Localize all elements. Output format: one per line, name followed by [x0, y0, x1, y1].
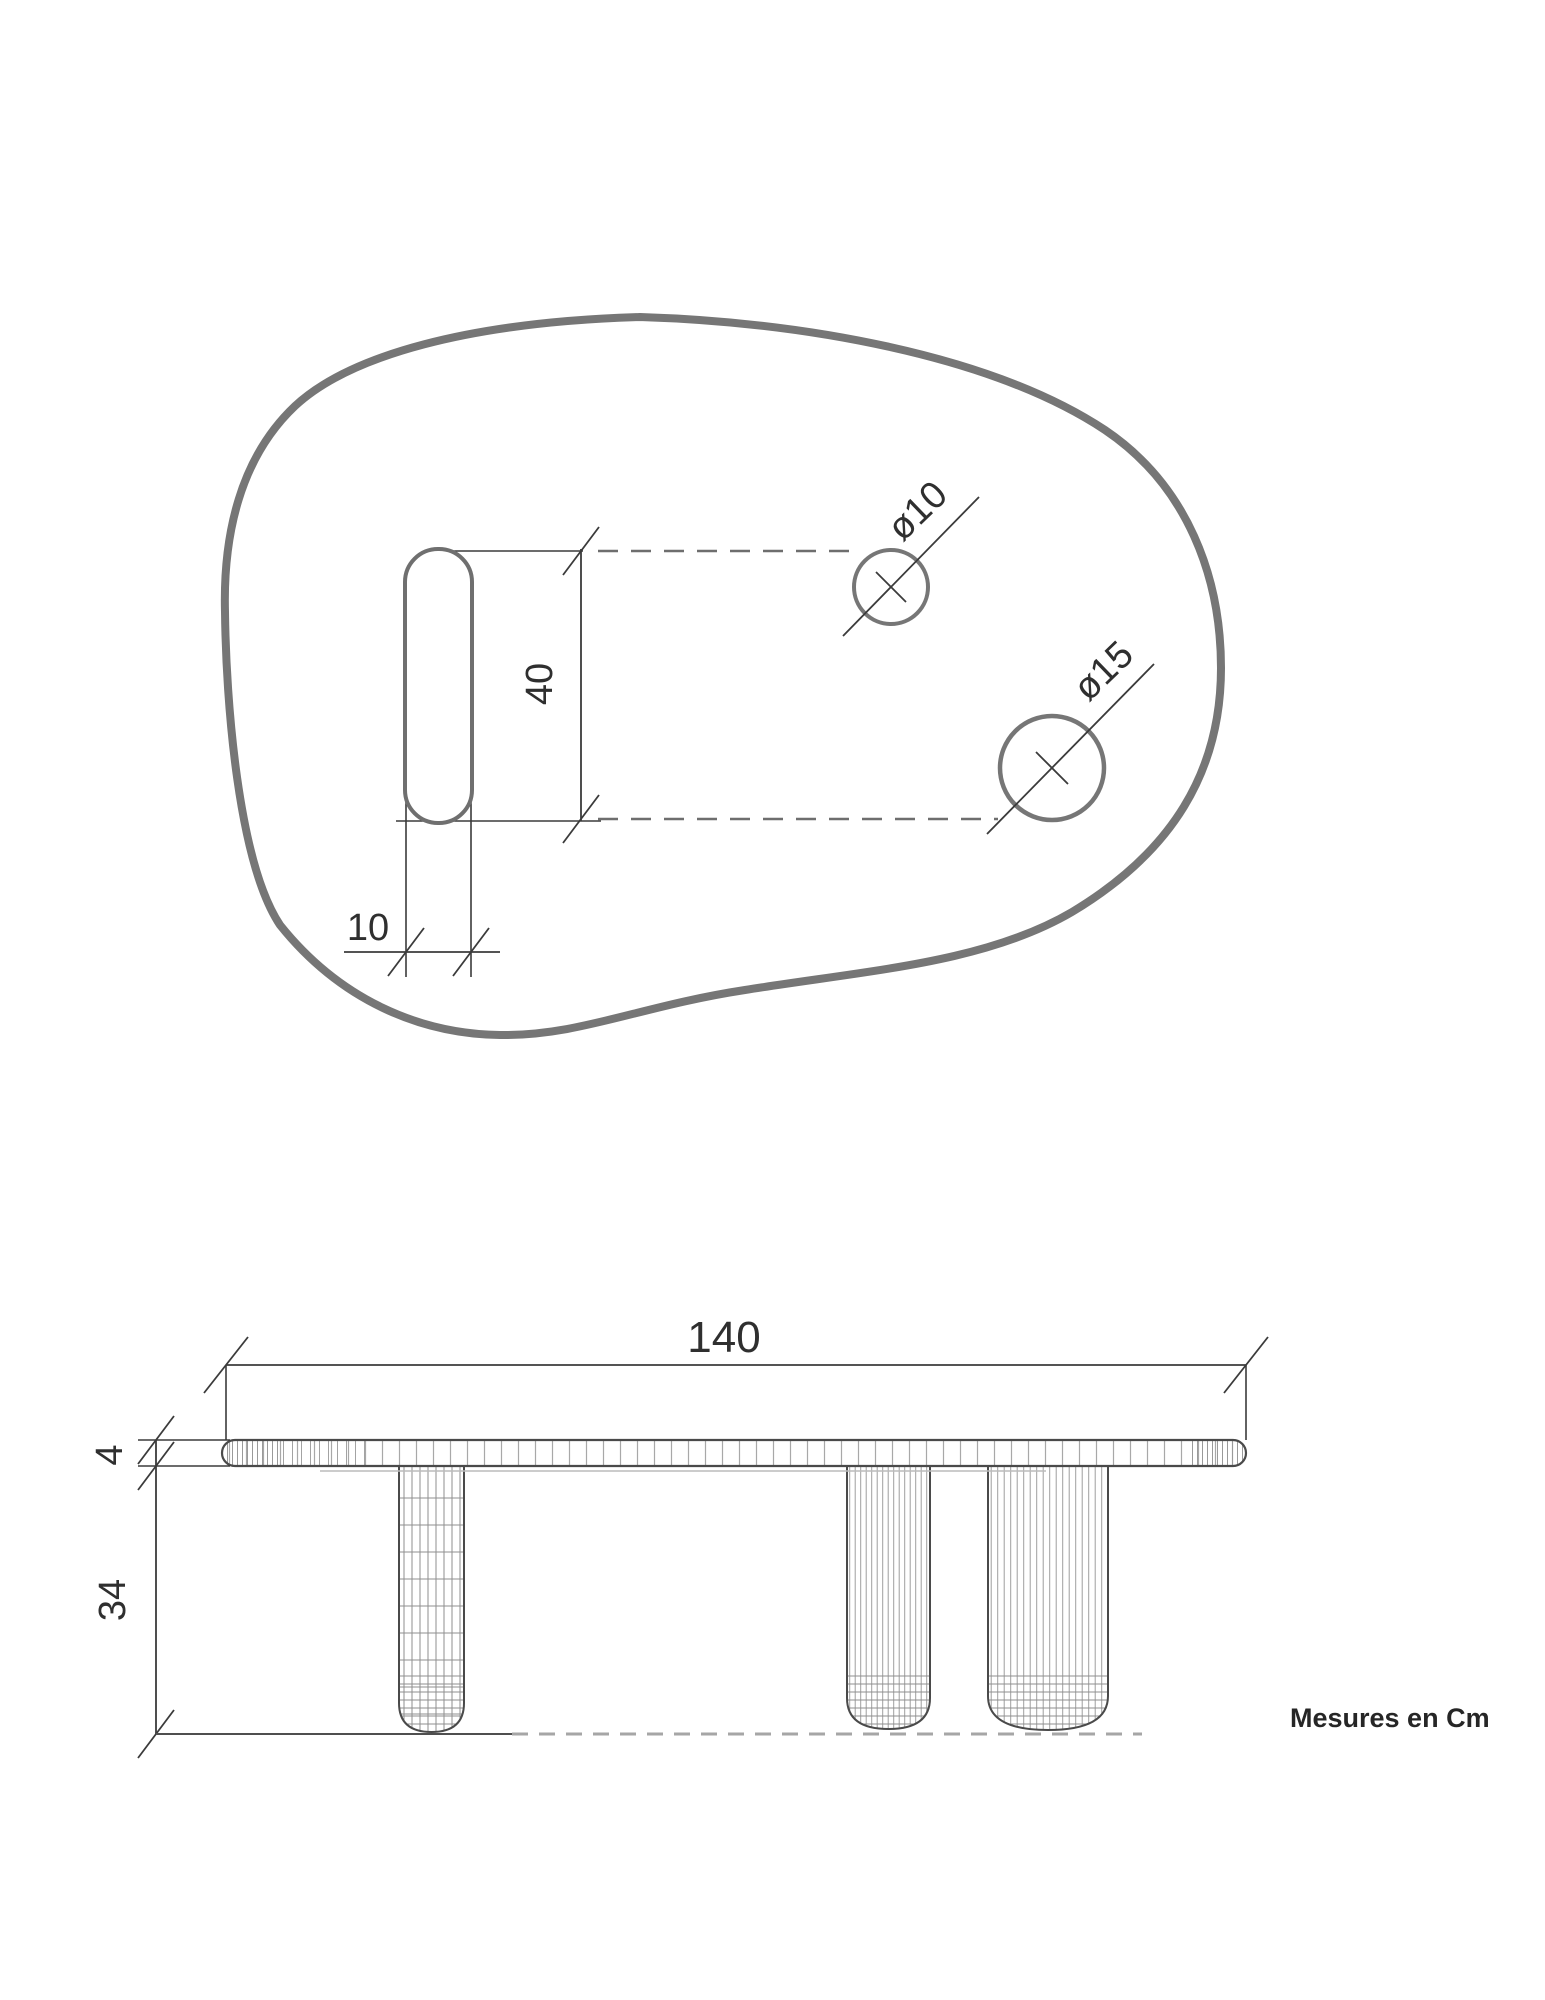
tabletop-slab — [222, 1440, 1246, 1466]
top-thickness-label: 4 — [89, 1444, 131, 1465]
leg-left — [399, 1466, 464, 1732]
drawing-page: 40 10 ø10 ø15 140 — [0, 0, 1545, 2000]
top-view: 40 10 ø10 ø15 — [225, 317, 1221, 1035]
slot-outline — [405, 549, 472, 823]
slab-hatch — [222, 1440, 1246, 1466]
slot-length-label: 40 — [519, 663, 561, 705]
leg-height-label: 34 — [92, 1579, 134, 1621]
slot-width-label: 10 — [347, 907, 389, 949]
technical-drawing: 40 10 ø10 ø15 140 — [0, 0, 1545, 2000]
leg-right — [988, 1466, 1108, 1730]
width-label: 140 — [687, 1313, 760, 1362]
units-note: Mesures en Cm — [1290, 1703, 1490, 1733]
leg-middle — [847, 1466, 930, 1729]
side-view: 140 — [89, 1313, 1490, 1758]
